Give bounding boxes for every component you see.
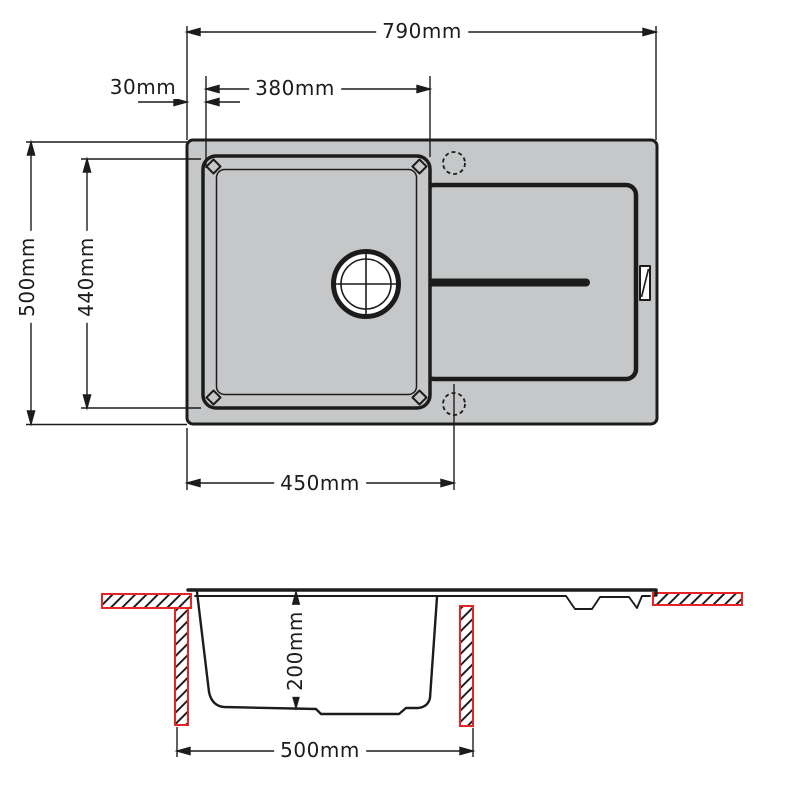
plan-view <box>187 140 657 424</box>
drawing-linework <box>0 0 800 800</box>
dimension-label-bowl-section-width: 450mm <box>274 471 366 495</box>
bowl-section-line <box>197 592 437 714</box>
dimension-label-bowl-length: 440mm <box>74 231 98 323</box>
dimension-label-bowl-depth: 200mm <box>283 605 307 697</box>
dimension-label-cutout-width: 500mm <box>274 738 366 762</box>
sink-technical-drawing: 790mm 30mm 380mm 500mm 440mm 450mm 200mm… <box>0 0 800 800</box>
dimension-label-bowl-width: 380mm <box>249 76 341 100</box>
dimension-label-overall-width: 790mm <box>376 19 468 43</box>
worktop-cut-left <box>102 594 191 725</box>
dimension-label-edge-to-bowl: 30mm <box>104 75 182 99</box>
overflow-slot <box>640 266 650 300</box>
dimension-label-overall-depth: 500mm <box>15 231 39 323</box>
drainer-section-line <box>195 596 650 609</box>
worktop-cut-right <box>460 593 742 726</box>
sink-section-profile <box>188 590 656 714</box>
section-dimension-lines <box>177 592 473 757</box>
section-view <box>102 590 742 757</box>
drain-strainer <box>334 252 399 317</box>
